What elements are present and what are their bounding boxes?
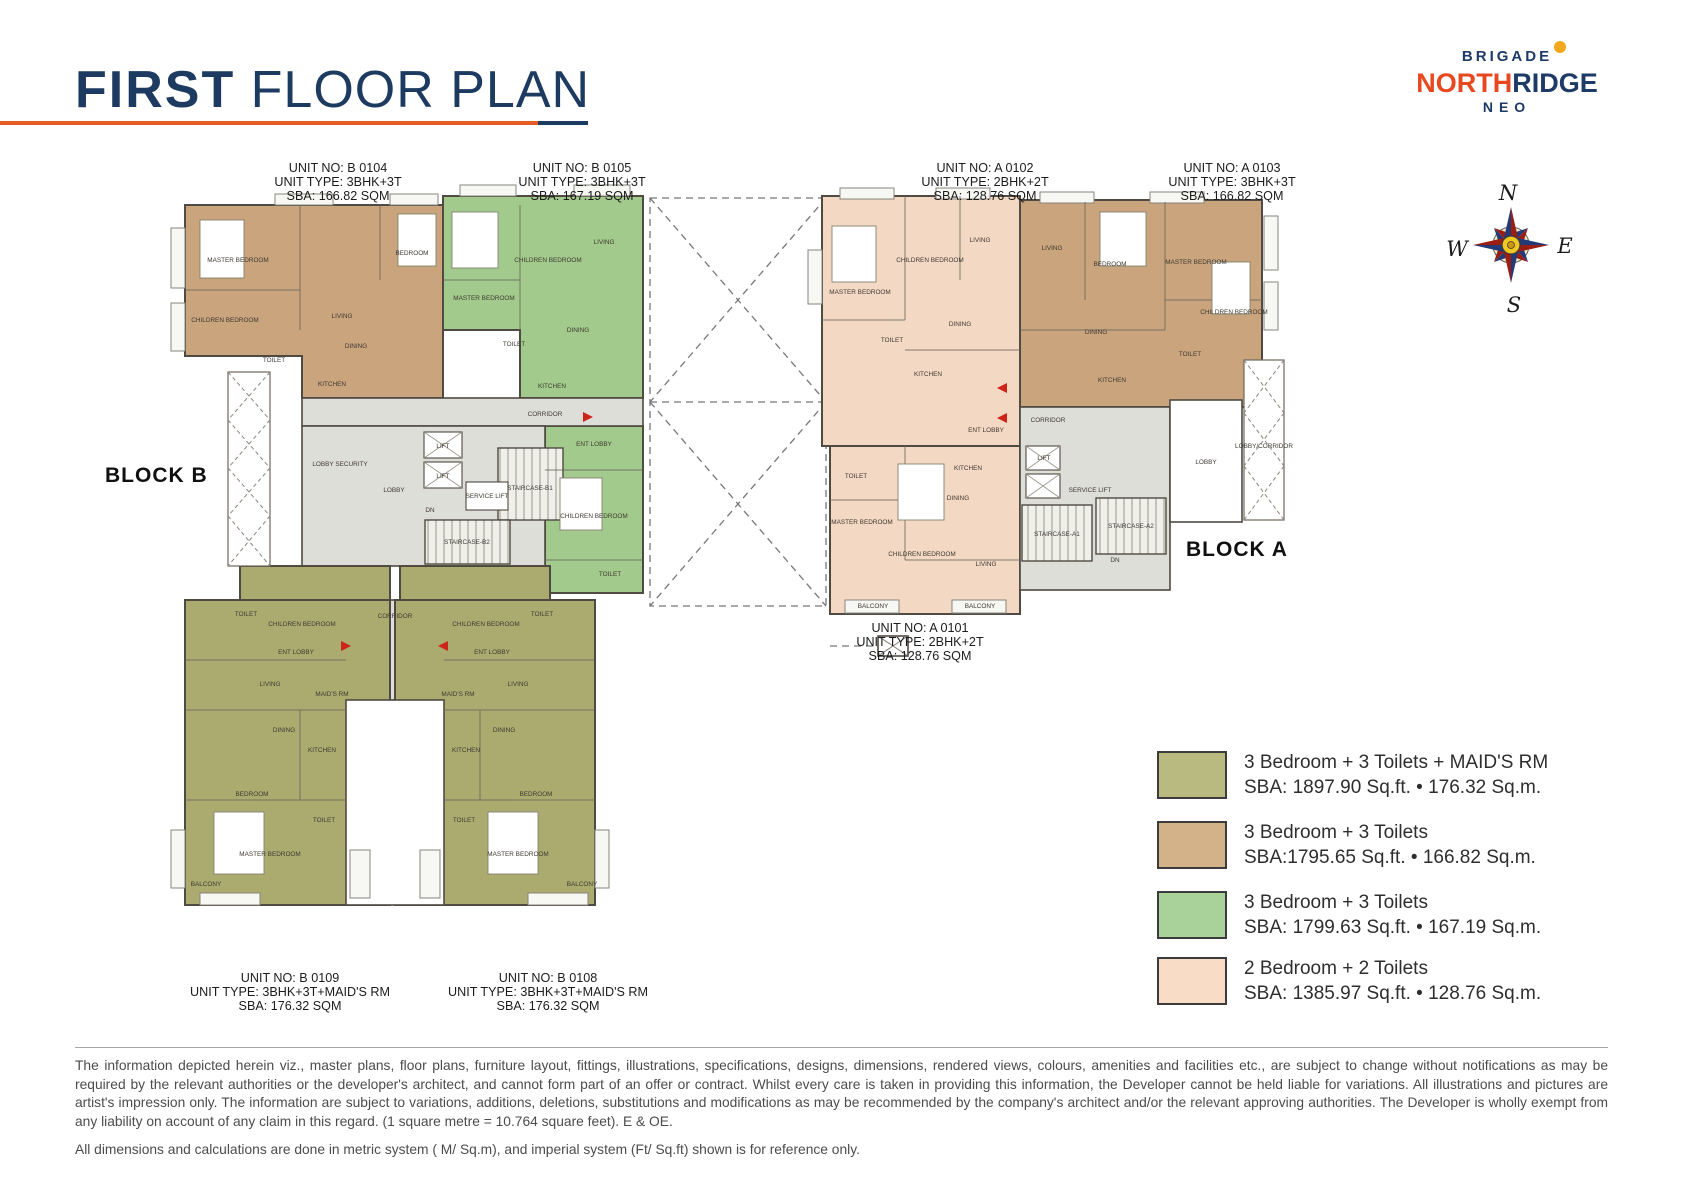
room-label: LOBBY	[383, 487, 405, 494]
room-label: MASTER BEDROOM	[239, 851, 300, 858]
room-label: DINING	[567, 327, 589, 334]
compass-west-label: W	[1446, 237, 1470, 261]
room-label: DINING	[273, 727, 295, 734]
room-label: KITCHEN	[318, 381, 346, 388]
room-label: CHILDREN BEDROOM	[888, 551, 955, 558]
legend-text: 3 Bedroom + 3 Toilets SBA: 1799.63 Sq.ft…	[1244, 890, 1541, 940]
room-label: LIVING	[970, 237, 991, 244]
legend-label: 3 Bedroom + 3 Toilets	[1244, 890, 1541, 915]
unit-label-b0108: UNIT NO: B 0108 UNIT TYPE: 3BHK+3T+MAID'…	[448, 972, 648, 1014]
room-label: TOILET	[845, 473, 867, 480]
room-label: CHILDREN BEDROOM	[191, 317, 258, 324]
unit-sba: SBA: 176.32 SQM	[448, 1000, 648, 1014]
unit-sba: SBA: 166.82 SQM	[274, 190, 401, 204]
unit-label-a0101: UNIT NO: A 0101 UNIT TYPE: 2BHK+2T SBA: …	[856, 622, 983, 664]
unit-type: UNIT TYPE: 3BHK+3T+MAID'S RM	[190, 986, 390, 1000]
room-label: KITCHEN	[308, 747, 336, 754]
room-label: CORRIDOR	[378, 613, 413, 620]
unit-sba: SBA: 128.76 SQM	[856, 650, 983, 664]
room-label: CORRIDOR	[1031, 417, 1066, 424]
unit-no: UNIT NO: B 0108	[448, 972, 648, 986]
unit-label-a0103: UNIT NO: A 0103 UNIT TYPE: 3BHK+3T SBA: …	[1168, 162, 1295, 204]
page-title: FIRST FLOOR PLAN	[75, 60, 590, 120]
room-label: STAIRCASE-B1	[507, 485, 553, 492]
block-a-label: BLOCK A	[1186, 538, 1288, 562]
unit-type: UNIT TYPE: 2BHK+2T	[921, 176, 1048, 190]
room-label: TOILET	[453, 817, 475, 824]
room-label: CHILDREN BEDROOM	[452, 621, 519, 628]
room-label: TOILET	[881, 337, 903, 344]
room-label: MASTER BEDROOM	[207, 257, 268, 264]
legend-text: 3 Bedroom + 3 Toilets + MAID'S RM SBA: 1…	[1244, 750, 1548, 800]
title-word-rest: FLOOR PLAN	[235, 61, 590, 119]
unit-type: UNIT TYPE: 3BHK+3T+MAID'S RM	[448, 986, 648, 1000]
room-label: LOBBY	[1195, 459, 1217, 466]
legend-swatch-pink	[1157, 957, 1227, 1005]
room-label: STAIRCASE-B2	[444, 539, 490, 546]
dimensions-note: All dimensions and calculations are done…	[75, 1142, 1608, 1157]
legend-item-2bhk-pink: 2 Bedroom + 2 Toilets SBA: 1385.97 Sq.ft…	[1157, 956, 1541, 1006]
legend-swatch-tan	[1157, 821, 1227, 869]
unit-no: UNIT NO: B 0105	[518, 162, 645, 176]
block-b-label: BLOCK B	[105, 464, 208, 488]
legend-label: 3 Bedroom + 3 Toilets	[1244, 820, 1536, 845]
room-label: BEDROOM	[1093, 261, 1126, 268]
unit-no: UNIT NO: A 0102	[921, 162, 1048, 176]
room-label: MASTER BEDROOM	[831, 519, 892, 526]
room-label: TOILET	[1179, 351, 1201, 358]
legend-swatch-green	[1157, 891, 1227, 939]
unit-sba: SBA: 128.76 SQM	[921, 190, 1048, 204]
room-label: MASTER BEDROOM	[1165, 259, 1226, 266]
unit-type: UNIT TYPE: 3BHK+3T	[518, 176, 645, 190]
legend-label: 3 Bedroom + 3 Toilets + MAID'S RM	[1244, 750, 1548, 775]
room-label: DN	[1110, 557, 1120, 564]
unit-type: UNIT TYPE: 3BHK+3T	[274, 176, 401, 190]
room-label: LIVING	[332, 313, 353, 320]
title-underline-orange	[0, 121, 538, 125]
room-label: KITCHEN	[452, 747, 480, 754]
room-label: LOBBY SECURITY	[312, 461, 368, 468]
room-label: MAID'S RM	[315, 691, 348, 698]
unit-sba: SBA: 167.19 SQM	[518, 190, 645, 204]
disclaimer-paragraph: The information depicted herein viz., ma…	[75, 1057, 1608, 1132]
room-label: SERVICE LIFT	[466, 493, 509, 500]
room-label: DINING	[493, 727, 515, 734]
legend-item-3bhk-tan: 3 Bedroom + 3 Toilets SBA:1795.65 Sq.ft.…	[1157, 820, 1536, 870]
legend-sba: SBA:1795.65 Sq.ft. • 166.82 Sq.m.	[1244, 845, 1536, 870]
room-label: CHILDREN BEDROOM	[1200, 309, 1267, 316]
room-label: LIFT	[436, 473, 449, 480]
logo-brigade-row: BRIGADE	[1462, 48, 1552, 66]
room-label: TOILET	[263, 357, 285, 364]
expansion-joint-connector	[650, 198, 826, 606]
room-label: LIVING	[260, 681, 281, 688]
legend-text: 3 Bedroom + 3 Toilets SBA:1795.65 Sq.ft.…	[1244, 820, 1536, 870]
compass-star	[1473, 207, 1549, 283]
room-label: MASTER BEDROOM	[829, 289, 890, 296]
logo-sun-dot-icon	[1554, 41, 1566, 53]
brand-logo: BRIGADE NORTHRIDGE NEO	[1404, 48, 1610, 116]
room-label: ENT LOBBY	[576, 441, 612, 448]
room-label: BALCONY	[858, 603, 889, 610]
logo-brigade-text: BRIGADE	[1462, 48, 1552, 65]
unit-label-b0105: UNIT NO: B 0105 UNIT TYPE: 3BHK+3T SBA: …	[518, 162, 645, 204]
legend-sba: SBA: 1799.63 Sq.ft. • 167.19 Sq.m.	[1244, 915, 1541, 940]
footer-divider	[75, 1047, 1608, 1048]
room-label: TOILET	[503, 341, 525, 348]
unit-type: UNIT TYPE: 3BHK+3T	[1168, 176, 1295, 190]
compass-rose-icon: N E S W	[1441, 170, 1581, 322]
room-label: BEDROOM	[519, 791, 552, 798]
room-label: ENT LOBBY	[968, 427, 1004, 434]
room-label: LIVING	[508, 681, 529, 688]
room-label: TOILET	[599, 571, 621, 578]
room-label: SERVICE LIFT	[1069, 487, 1112, 494]
unit-sba: SBA: 166.82 SQM	[1168, 190, 1295, 204]
room-label: STAIRCASE-A1	[1034, 531, 1080, 538]
unit-no: UNIT NO: B 0109	[190, 972, 390, 986]
room-label: CHILDREN BEDROOM	[514, 257, 581, 264]
title-word-first: FIRST	[75, 61, 235, 119]
legend-sba: SBA: 1385.97 Sq.ft. • 128.76 Sq.m.	[1244, 981, 1541, 1006]
room-label: LIVING	[1042, 245, 1063, 252]
title-underline-navy	[538, 121, 588, 125]
room-label: MASTER BEDROOM	[487, 851, 548, 858]
room-label: KITCHEN	[914, 371, 942, 378]
room-label: BALCONY	[965, 603, 996, 610]
room-label: TOILET	[235, 611, 257, 618]
room-label: TOILET	[313, 817, 335, 824]
room-label: MASTER BEDROOM	[453, 295, 514, 302]
logo-north-text: NORTH	[1416, 68, 1512, 98]
room-label: MAID'S RM	[441, 691, 474, 698]
room-label: LIVING	[976, 561, 997, 568]
room-label: DINING	[949, 321, 971, 328]
room-label: BEDROOM	[235, 791, 268, 798]
room-label: CORRIDOR	[528, 411, 563, 418]
room-label: CHILDREN BEDROOM	[560, 513, 627, 520]
room-label: TOILET	[531, 611, 553, 618]
room-label: LIFT	[436, 443, 449, 450]
logo-northridge: NORTHRIDGE	[1404, 69, 1610, 99]
room-label: DINING	[947, 495, 969, 502]
legend-item-3bhk-maid: 3 Bedroom + 3 Toilets + MAID'S RM SBA: 1…	[1157, 750, 1548, 800]
room-label: STAIRCASE-A2	[1108, 523, 1154, 530]
unit-no: UNIT NO: B 0104	[274, 162, 401, 176]
legend-swatch-olive	[1157, 751, 1227, 799]
unit-no: UNIT NO: A 0103	[1168, 162, 1295, 176]
unit-label-b0104: UNIT NO: B 0104 UNIT TYPE: 3BHK+3T SBA: …	[274, 162, 401, 204]
unit-label-b0109: UNIT NO: B 0109 UNIT TYPE: 3BHK+3T+MAID'…	[190, 972, 390, 1014]
room-label: KITCHEN	[538, 383, 566, 390]
legend-sba: SBA: 1897.90 Sq.ft. • 176.32 Sq.m.	[1244, 775, 1548, 800]
room-label: ENT LOBBY	[278, 649, 314, 656]
room-label: DN	[425, 507, 435, 514]
room-label: KITCHEN	[954, 465, 982, 472]
legend-item-3bhk-green: 3 Bedroom + 3 Toilets SBA: 1799.63 Sq.ft…	[1157, 890, 1541, 940]
room-label: CHILDREN BEDROOM	[896, 257, 963, 264]
unit-sba: SBA: 176.32 SQM	[190, 1000, 390, 1014]
legend-label: 2 Bedroom + 2 Toilets	[1244, 956, 1541, 981]
logo-ridge-text: RIDGE	[1512, 68, 1598, 98]
unit-type: UNIT TYPE: 2BHK+2T	[856, 636, 983, 650]
room-label: ENT LOBBY	[474, 649, 510, 656]
room-label: KITCHEN	[1098, 377, 1126, 384]
room-label: BEDROOM	[395, 250, 428, 257]
room-label: LIFT	[1037, 455, 1050, 462]
legend-text: 2 Bedroom + 2 Toilets SBA: 1385.97 Sq.ft…	[1244, 956, 1541, 1006]
compass-south-label: S	[1507, 293, 1521, 317]
unit-label-a0102: UNIT NO: A 0102 UNIT TYPE: 2BHK+2T SBA: …	[921, 162, 1048, 204]
room-label: BALCONY	[191, 881, 222, 888]
room-label: BALCONY	[567, 881, 598, 888]
unit-no: UNIT NO: A 0101	[856, 622, 983, 636]
room-label: DINING	[345, 343, 367, 350]
room-label: LOBBY/CORRIDOR	[1235, 443, 1293, 450]
compass-north-label: N	[1498, 181, 1518, 205]
room-label: LIVING	[594, 239, 615, 246]
room-label: DINING	[1085, 329, 1107, 336]
room-label: CHILDREN BEDROOM	[268, 621, 335, 628]
compass-east-label: E	[1556, 234, 1572, 258]
logo-neo-text: NEO	[1404, 100, 1610, 115]
